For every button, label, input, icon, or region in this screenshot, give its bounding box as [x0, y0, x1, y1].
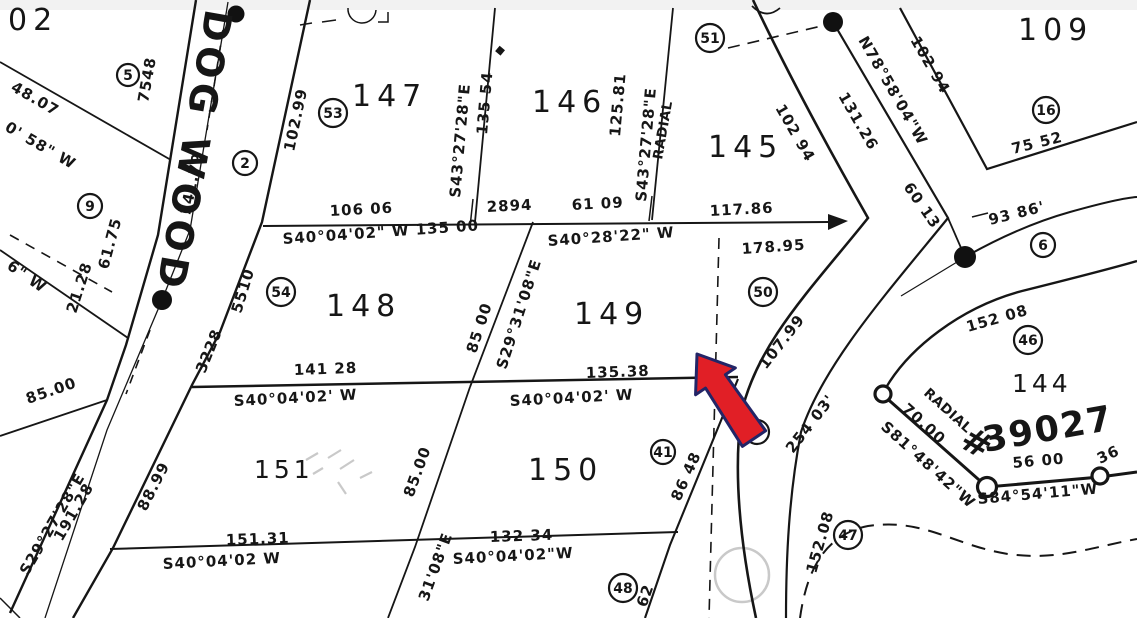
dim-7548: 7548	[134, 56, 160, 104]
dim-102-94b: 102 94	[907, 33, 954, 97]
bearing-s40-e: S40°04'02"W	[452, 544, 574, 568]
dim-61-09: 61 09	[571, 193, 624, 214]
dim-60-13: 60 13	[900, 179, 945, 232]
bearing-s43-a: S43°27'28"E	[446, 83, 474, 199]
dim-56-00: 56 00	[1012, 450, 1065, 472]
bearing-s40-b: S40°04'02' W	[233, 386, 358, 410]
point-48: 48	[609, 574, 637, 602]
dashed-radial-51	[728, 24, 830, 48]
scan-edge-strip	[0, 0, 1137, 10]
point-2: 2	[233, 151, 257, 175]
dim-141-28: 141 28	[294, 359, 358, 379]
dim-152-08b: 152.08	[803, 509, 838, 575]
curve-152-08	[883, 261, 1137, 393]
monument-dot-4	[954, 246, 976, 268]
point-53: 53	[319, 99, 347, 127]
top-bracket	[378, 12, 388, 22]
point-46: 46	[1014, 326, 1042, 354]
street-name-dogwood: DOG WOOD	[147, 6, 240, 296]
dim-131-26: 131.26	[835, 89, 883, 153]
top-partial-circle	[348, 8, 376, 23]
monument-dot-2	[152, 290, 172, 310]
dim-106-06: 106 06	[329, 199, 393, 220]
point-54: 54	[267, 278, 295, 306]
point-51: 51	[696, 24, 724, 52]
dim-135-38: 135.38	[586, 362, 650, 382]
dim-151-31: 151.31	[226, 529, 290, 549]
dim-178-95: 178.95	[741, 236, 806, 258]
bearing-s29-31: S29°31'08"E	[493, 257, 546, 372]
pencil-smudge	[306, 450, 372, 494]
svg-text:9: 9	[85, 199, 95, 215]
faint-watermark-circle	[715, 548, 769, 602]
svg-text:2: 2	[240, 156, 250, 172]
lot-number-145: 145	[708, 130, 783, 165]
lot-number-146: 146	[532, 85, 607, 120]
dim-254-03: 254 03'	[782, 391, 839, 456]
bearing-s40-main: S40°04'02" W 135 00	[282, 216, 480, 248]
svg-text:50: 50	[753, 285, 773, 301]
dim-36-fragment: 36	[1094, 442, 1122, 468]
point-50: 50	[749, 278, 777, 306]
dim-117-86: 117.86	[709, 199, 774, 220]
svg-text:51: 51	[700, 31, 719, 47]
dim-48-07: 48.07	[8, 78, 62, 120]
dim-3228: 3228	[192, 326, 226, 375]
dim-132-34: 132 34	[490, 526, 554, 546]
svg-text:46: 46	[1018, 333, 1037, 349]
dim-107-99: 107.99	[755, 311, 809, 372]
lot-line-mid	[192, 377, 738, 387]
dim-21-28: 21.28	[63, 260, 96, 315]
bearing-s40-d: S40°04'02 W	[162, 549, 281, 573]
bearing-s40-c: S40°04'02' W	[509, 386, 634, 410]
dim-85-left: 85.00	[23, 374, 78, 408]
lot-line-85-left	[0, 400, 107, 436]
svg-text:41: 41	[653, 445, 672, 461]
fragment-31-08: 31'08"E	[415, 530, 456, 603]
lot-number-150: 150	[528, 453, 603, 488]
dim-5510: 5510	[228, 266, 259, 315]
corner-stub	[0, 598, 20, 618]
dimension-labels: 48.07 0' 58" W 7548 102.99 141.79 61.75 …	[2, 33, 1122, 618]
monument-dot-3	[823, 12, 843, 32]
lot-number-109: 109	[1018, 13, 1093, 48]
svg-text:53: 53	[323, 106, 342, 122]
point-47: 47	[834, 521, 862, 549]
plat-map-svg: 02 147 146 145 109 148 149 150 151 144 3…	[0, 0, 1137, 618]
centerline-dashes-2	[126, 330, 150, 394]
lot-number-151: 151	[254, 455, 314, 484]
svg-text:6: 6	[1038, 238, 1048, 254]
point-41: 41	[651, 440, 675, 464]
plat-map-screenshot: 02 147 146 145 109 148 149 150 151 144 3…	[0, 0, 1137, 618]
dim-85-ab: 85 00	[463, 300, 496, 355]
lot-number-149: 149	[574, 297, 649, 332]
dim-93-86: 93 86'	[987, 197, 1047, 228]
lot-number-144: 144	[1012, 369, 1072, 398]
dim-152-08a: 152 08	[964, 301, 1030, 336]
svg-text:5: 5	[123, 68, 133, 84]
dim-88-99: 88.99	[134, 459, 174, 514]
point-5a: 5	[117, 64, 139, 86]
lot-number-fragment: 02	[8, 3, 58, 38]
dim-6w-fragment: 6" W	[4, 257, 50, 297]
dim-0-58w: 0' 58" W	[2, 118, 79, 173]
dim-61-75: 61.75	[94, 216, 125, 271]
lot-number-147: 147	[352, 79, 427, 114]
point-6: 6	[1031, 233, 1055, 257]
svg-text:47: 47	[838, 528, 857, 544]
dash-93-86	[972, 213, 988, 217]
svg-text:54: 54	[271, 285, 291, 301]
open-point-1	[875, 386, 891, 402]
lot-number-148: 148	[326, 289, 401, 324]
dim-125-81: 125.81	[606, 72, 629, 137]
lot-line-bottom	[110, 532, 678, 549]
dim-2894: 2894	[486, 196, 533, 216]
dimension-arrowhead	[828, 214, 848, 230]
point-9: 9	[78, 194, 102, 218]
point-16: 16	[1033, 97, 1059, 123]
bearing-s40-28: S40°28'22" W	[547, 223, 675, 250]
dim-135-54: 135 54	[473, 71, 496, 136]
svg-text:16: 16	[1036, 103, 1055, 119]
dim-85-cd: 85.00	[400, 444, 435, 499]
tick-mark-diamond	[495, 46, 505, 56]
svg-text:48: 48	[613, 581, 632, 597]
